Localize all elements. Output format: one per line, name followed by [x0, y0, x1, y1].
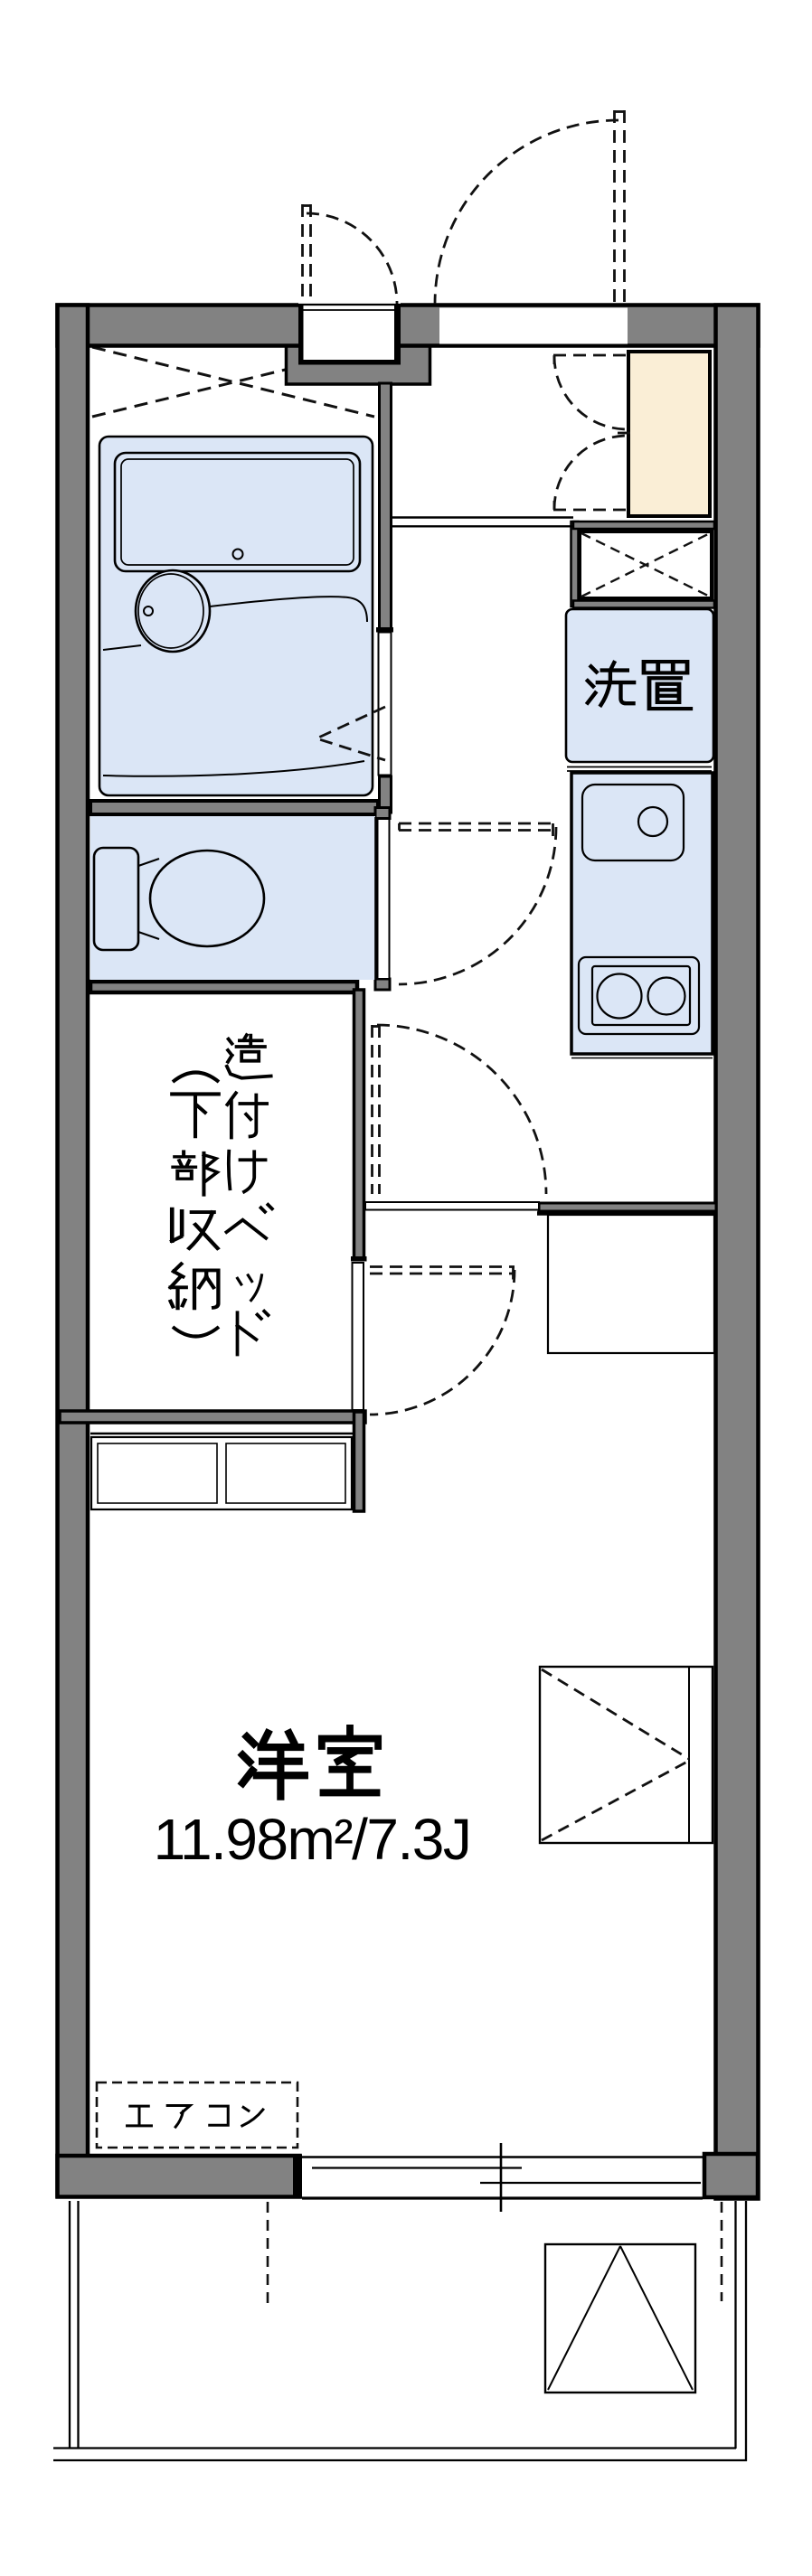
svg-text:11.98m²/7.3J: 11.98m²/7.3J — [154, 1807, 471, 1872]
